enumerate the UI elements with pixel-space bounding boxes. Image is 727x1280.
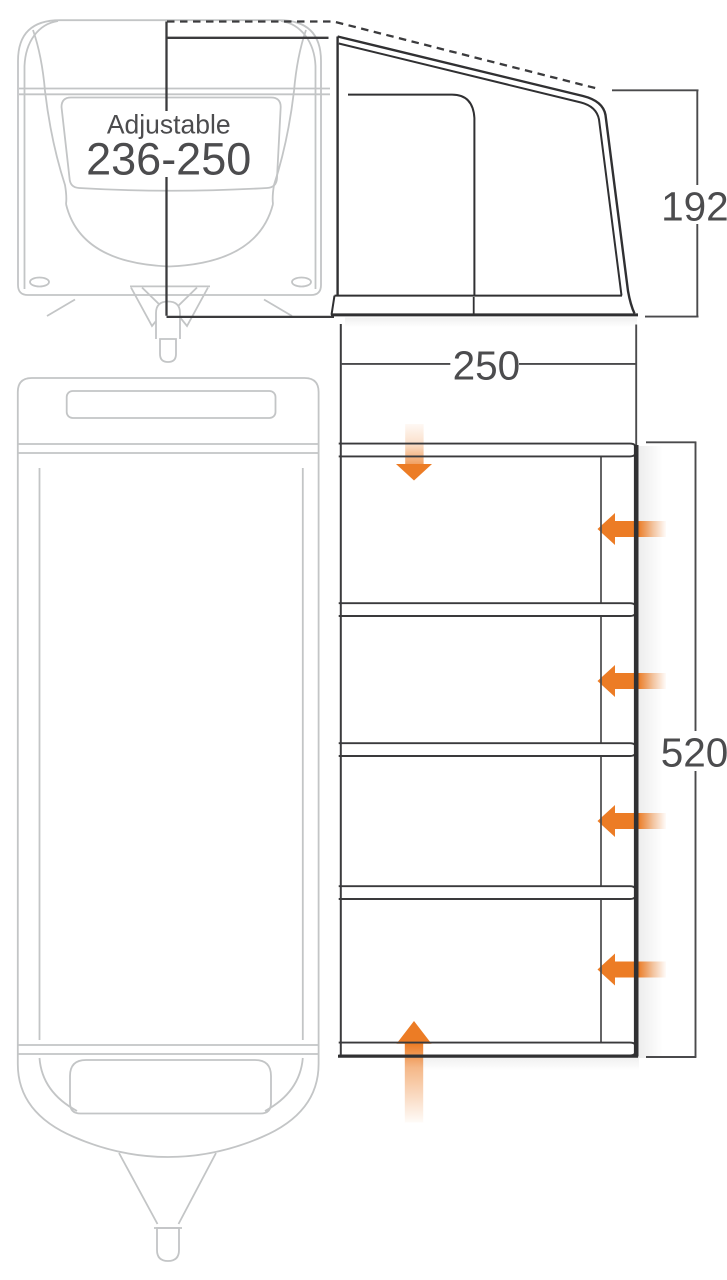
svg-text:236-250: 236-250 bbox=[86, 134, 251, 185]
svg-text:250: 250 bbox=[453, 343, 521, 389]
svg-text:192: 192 bbox=[661, 184, 727, 230]
svg-text:520: 520 bbox=[661, 730, 727, 776]
